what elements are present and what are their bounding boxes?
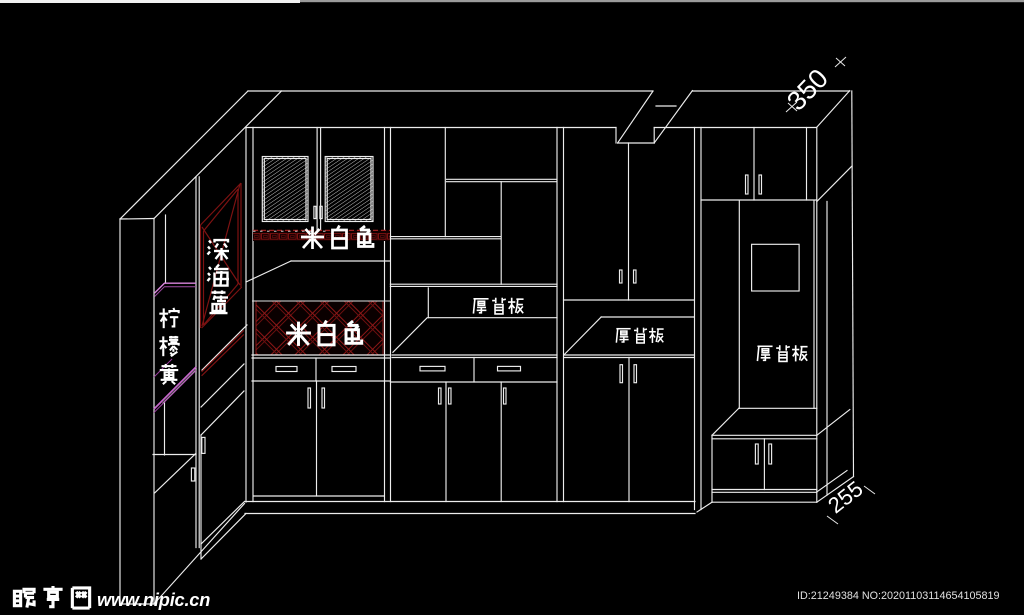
- svg-text:ID:21249384 NO:202011031146541: ID:21249384 NO:20201103114654105819: [797, 590, 1000, 602]
- svg-text:www.nipic.cn: www.nipic.cn: [97, 590, 210, 610]
